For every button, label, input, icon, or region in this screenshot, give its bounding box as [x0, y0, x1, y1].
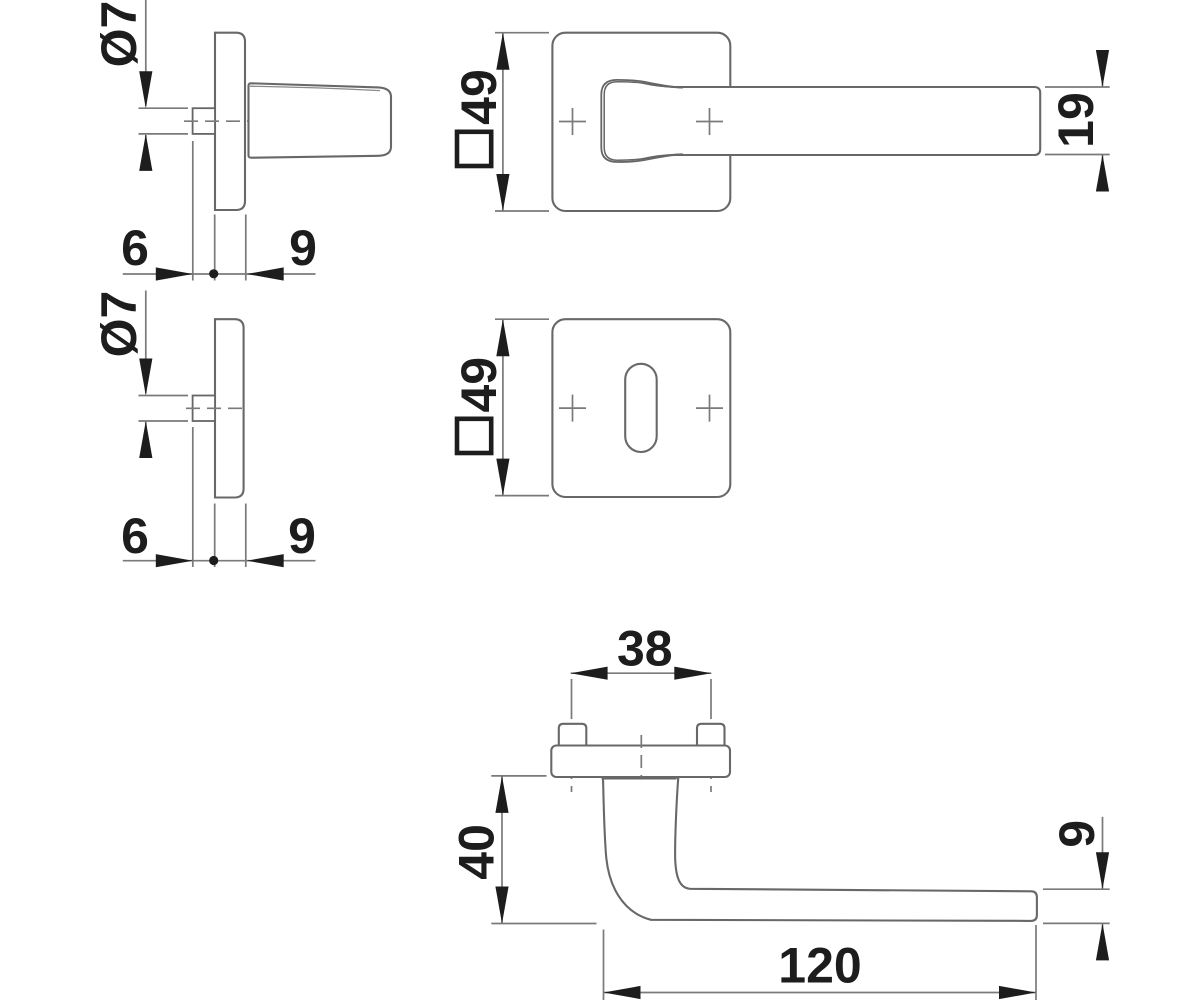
svg-text:9: 9 [1049, 820, 1105, 848]
svg-text:120: 120 [778, 938, 861, 994]
svg-text:9: 9 [288, 508, 316, 564]
svg-text:19: 19 [1048, 92, 1104, 148]
svg-text:49: 49 [451, 69, 507, 125]
svg-text:Ø7: Ø7 [91, 1, 147, 68]
svg-text:40: 40 [449, 824, 505, 880]
svg-text:6: 6 [121, 508, 149, 564]
svg-text:38: 38 [617, 621, 673, 677]
svg-text:6: 6 [121, 220, 149, 276]
svg-text:Ø7: Ø7 [91, 291, 147, 358]
svg-text:49: 49 [451, 357, 507, 413]
svg-text:9: 9 [289, 220, 317, 276]
